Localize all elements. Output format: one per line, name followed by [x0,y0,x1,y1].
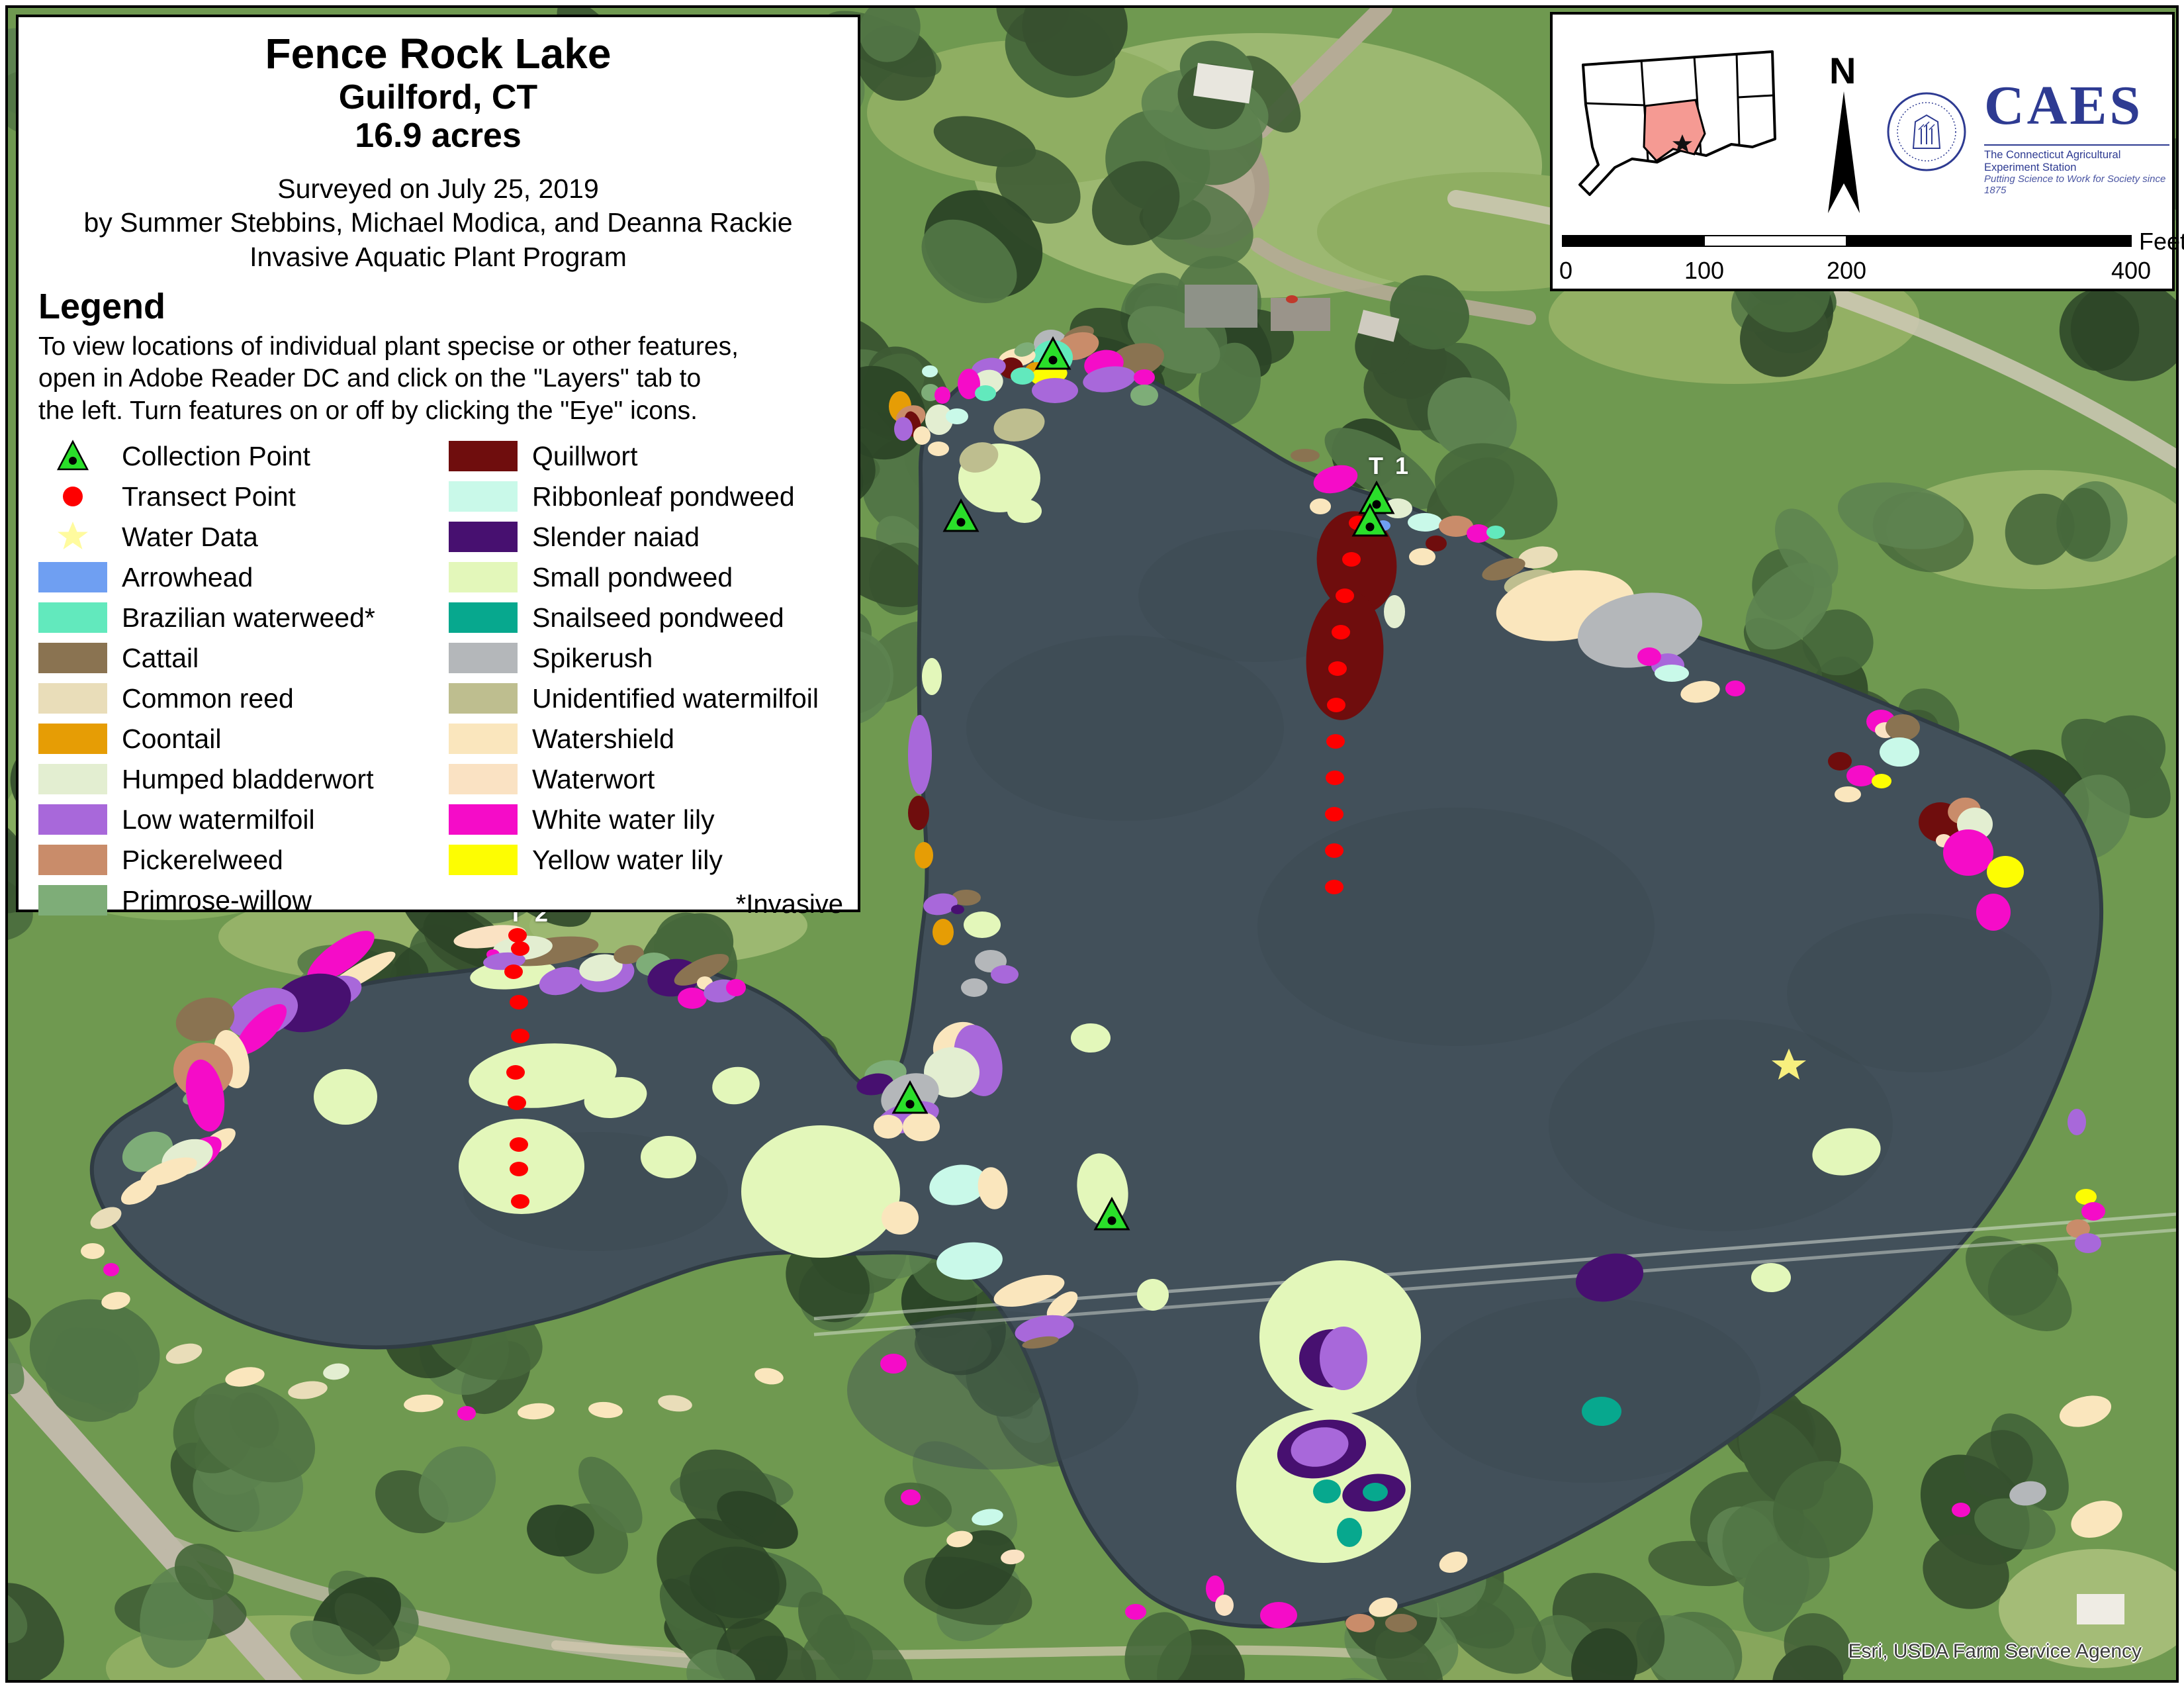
legend-item-ribbonleaf-pondweed: Ribbonleaf pondweed [449,477,846,517]
legend-label: Slender naiad [532,522,700,553]
legend-item-small-pondweed: Small pondweed [449,557,846,598]
legend-label: Ribbonleaf pondweed [532,481,795,512]
plant-bed-brazilian-waterweed [1486,526,1505,539]
plant-bed-watershield [882,1201,919,1235]
plant-bed-low-watermilfoil [1320,1327,1367,1390]
transect-point [1336,588,1354,603]
transect-point [504,964,523,979]
legend-swatch-arrowhead [38,562,107,592]
scale-tick-400: 400 [2111,257,2151,285]
legend-symbol-cell [38,480,107,513]
plant-bed-small-pondweed [1751,1263,1791,1292]
plant-bed-white-water-lily [726,979,746,996]
legend-item-snailseed-pondweed: Snailseed pondweed [449,598,846,638]
survey-info: Surveyed on July 25, 2019 by Summer Steb… [19,172,858,274]
plant-bed-small-pondweed [741,1125,900,1258]
legend-item-brazilian-waterweed: Brazilian waterweed* [38,598,449,638]
legend-swatch-yellow-water-lily [449,845,518,875]
survey-map-page: T 1T 2 Esri, USDA Farm Service Agency Fe… [0,0,2184,1688]
plant-bed-small-pondweed [1137,1279,1169,1311]
legend-item-transect-point: Transect Point [38,477,449,517]
legend-label: Collection Point [122,441,310,472]
legend-panel: Fence Rock Lake Guilford, CT 16.9 acres … [16,15,860,912]
survey-authors: by Summer Stebbins, Michael Modica, and … [19,206,858,240]
legend-label: Spikerush [532,643,653,674]
plant-bed-white-water-lily [1976,894,2011,931]
legend-item-spikerush: Spikerush [449,638,846,679]
legend-item-arrowhead: Arrowhead [38,557,449,598]
plant-bed-watershield [1409,548,1435,565]
north-arrow-icon [1817,87,1870,220]
legend-label: Snailseed pondweed [532,602,784,633]
scale-tick-200: 200 [1827,257,1866,285]
plant-bed-small-pondweed [314,1069,377,1125]
transect-point [508,1096,526,1110]
plant-bed-watershield [1835,786,1861,802]
plant-bed-cattail [1291,449,1320,462]
plant-bed-slender-naiad [951,905,964,914]
legend-item-coontail: Coontail [38,719,449,759]
legend-column-right: QuillwortRibbonleaf pondweedSlender naia… [449,436,846,921]
scale-bar: 0 100 200 400 Feet [1562,233,2168,286]
transect-point [510,995,528,1009]
plant-bed-white-water-lily [1134,369,1155,385]
plant-bed-white-water-lily [1125,1604,1146,1620]
legend-swatch-unidentified-watermilfoil [449,683,518,714]
plant-bed-watershield [928,442,949,456]
legend-item-common-reed: Common reed [38,679,449,719]
legend-label: Water Data [122,522,258,553]
transect-point [510,1137,528,1152]
plant-bed-ribbonleaf-pondweed [922,365,938,377]
legend-swatch-watershield [449,724,518,754]
plant-bed-low-watermilfoil [2068,1109,2086,1135]
transect-label: T 1 [1369,452,1411,479]
legend-swatch-snailseed-pondweed [449,602,518,633]
plant-bed-watershield [913,426,931,445]
building [1185,285,1257,328]
transect-point [1327,698,1345,712]
legend-label: Low watermilfoil [122,804,315,835]
legend-label: Common reed [122,683,294,714]
legend-label: Arrowhead [122,562,253,593]
transect-point [511,1029,529,1043]
plant-bed-coontail [933,919,954,945]
legend-item-low-watermilfoil: Low watermilfoil [38,800,449,840]
plant-bed-white-water-lily [934,387,950,404]
legend-label: Quillwort [532,441,637,472]
transect-point [1332,625,1350,639]
plant-bed-white-water-lily [1637,647,1661,666]
plant-bed-watershield [81,1243,105,1259]
plant-bed-watershield [1310,498,1331,514]
plant-bed-yellow-water-lily [1987,856,2024,888]
plant-bed-white-water-lily [1943,829,1993,876]
survey-date: Surveyed on July 25, 2019 [19,172,858,206]
legend-label: White water lily [532,804,715,835]
plant-bed-low-watermilfoil [908,715,932,794]
legend-instructions: To view locations of individual plant sp… [38,331,843,427]
plant-bed-white-water-lily [103,1263,119,1276]
legend-item-yellow-water-lily: Yellow water lily [449,840,846,880]
plant-bed-low-watermilfoil [2075,1233,2101,1253]
collection-point-icon [56,440,89,473]
legend-swatch-pickerelweed [38,845,107,875]
water-data-star-icon [56,520,89,553]
plant-bed-brazilian-waterweed [975,385,996,401]
legend-item-collection-point: Collection Point [38,436,449,477]
legend-swatch-cattail [38,643,107,673]
plant-bed-small-pondweed [964,912,1001,938]
plant-bed-white-water-lily [1260,1602,1297,1628]
plant-bed-ribbonleaf-pondweed [946,408,968,424]
legend-swatch-low-watermilfoil [38,804,107,835]
legend-swatch-small-pondweed [449,562,518,592]
legend-label: Pickerelweed [122,845,283,876]
legend-symbol-cell [38,440,107,473]
plant-bed-low-watermilfoil [1032,378,1078,403]
legend-label: Watershield [532,724,674,755]
plant-bed-quillwort [1828,752,1852,771]
caes-full-name: The Connecticut Agricultural Experiment … [1984,144,2169,174]
legend-item-pickerelweed: Pickerelweed [38,840,449,880]
map-subtitle: Guilford, CT [19,78,858,117]
legend-swatch-primrose-willow [38,885,107,915]
legend-item-primrose-willow: Primrose-willow [38,880,449,921]
transect-point [1325,843,1343,858]
plant-bed-white-water-lily [457,1406,476,1421]
transect-point [511,941,529,956]
legend-label: Transect Point [122,481,296,512]
building [2077,1594,2124,1624]
legend-label: Small pondweed [532,562,733,593]
legend-swatch-spikerush [449,643,518,673]
legend-swatch-white-water-lily [449,804,518,835]
legend-swatch-brazilian-waterweed [38,602,107,633]
plant-bed-low-watermilfoil [894,417,913,441]
legend-symbol-cell [38,520,107,553]
plant-bed-waterwort [1215,1595,1234,1616]
plant-bed-coontail [915,842,933,868]
legend-label: Yellow water lily [532,845,723,876]
transect-point [1328,661,1347,676]
building [1271,298,1330,331]
legend-label: Primrose-willow [122,885,312,916]
transect-point-icon [56,480,89,513]
plant-bed-brazilian-waterweed [1011,367,1034,385]
legend-label: Humped bladderwort [122,764,374,795]
plant-bed-white-water-lily [1725,680,1745,696]
inset-panel: N CAES The Connecticut Agricultural Expe… [1550,12,2175,291]
legend-item-waterwort: Waterwort [449,759,846,800]
legend-label: Coontail [122,724,221,755]
legend-item-humped-bladderwort: Humped bladderwort [38,759,449,800]
plant-bed-watershield [874,1115,903,1139]
plant-bed-white-water-lily [880,1354,907,1374]
legend-item-water-data: Water Data [38,517,449,557]
scale-tick-100: 100 [1684,257,1724,285]
plant-bed-cattail [1886,714,1920,741]
plant-bed-cattail [1385,1614,1417,1632]
transect-point [1342,552,1361,567]
survey-program: Invasive Aquatic Plant Program [19,240,858,274]
basemap-attribution: Esri, USDA Farm Service Agency [1848,1640,2142,1663]
plant-bed-humped-bladderwort [1384,595,1405,628]
plant-bed-snailseed-pondweed [1363,1483,1388,1501]
plant-bed-small-pondweed [641,1136,696,1178]
title-block: Fence Rock Lake Guilford, CT 16.9 acres [19,30,858,155]
plant-bed-quillwort [908,796,929,830]
scale-tick-0: 0 [1559,257,1572,285]
plant-bed-spikerush [961,978,987,997]
invasive-note: *Invasive [449,890,843,919]
legend-item-white-water-lily: White water lily [449,800,846,840]
caes-seal-icon [1884,89,1970,175]
legend-swatch-ribbonleaf-pondweed [449,481,518,512]
plant-bed-snailseed-pondweed [1582,1397,1621,1426]
legend-columns: Collection PointTransect PointWater Data… [38,436,851,921]
legend-heading: Legend [38,286,858,327]
legend-label: Waterwort [532,764,655,795]
plant-bed-primrose-willow [1130,385,1158,406]
map-title: Fence Rock Lake [19,30,858,78]
legend-label: Brazilian waterweed* [122,602,375,633]
caes-tagline: Putting Science to Work for Society sinc… [1984,173,2169,196]
north-label: N [1829,49,1856,92]
transect-point [511,1194,529,1209]
legend-column-left: Collection PointTransect PointWater Data… [38,436,449,921]
plant-bed-small-pondweed [1071,1023,1111,1053]
ct-inset-map [1562,34,1820,233]
legend-item-unidentified-watermilfoil: Unidentified watermilfoil [449,679,846,719]
plant-bed-yellow-water-lily [1872,774,1891,788]
legend-label: Cattail [122,643,199,674]
transect-point [510,1162,528,1176]
legend-item-quillwort: Quillwort [449,436,846,477]
legend-swatch-common-reed [38,683,107,714]
plant-bed-white-water-lily [1846,765,1876,786]
legend-swatch-coontail [38,724,107,754]
transect-point [508,928,527,943]
transect-point [1325,880,1343,894]
plant-bed-white-water-lily [901,1489,921,1505]
plant-bed-small-pondweed [1007,499,1042,523]
legend-item-watershield: Watershield [449,719,846,759]
plant-bed-watershield [903,1112,940,1141]
plant-bed-ribbonleaf-pondweed [1408,513,1442,532]
transect-point [1325,807,1343,821]
plant-bed-pickerelweed [1345,1614,1375,1632]
transect-point [506,1065,525,1080]
scale-unit: Feet [2139,228,2184,256]
plant-bed-white-water-lily [1952,1503,1970,1517]
caes-wordmark: CAES [1984,78,2143,134]
legend-item-slender-naiad: Slender naiad [449,517,846,557]
legend-swatch-waterwort [449,764,518,794]
plant-bed-quillwort [1426,536,1447,551]
legend-label: Unidentified watermilfoil [532,683,819,714]
transect-point [1326,734,1345,749]
plant-bed-white-water-lily [678,988,707,1009]
legend-swatch-slender-naiad [449,522,518,552]
map-acreage: 16.9 acres [19,117,858,155]
legend-swatch-humped-bladderwort [38,764,107,794]
legend-swatch-quillwort [449,441,518,471]
plant-bed-low-watermilfoil [991,965,1019,984]
transect-point [1326,771,1344,785]
legend-item-cattail: Cattail [38,638,449,679]
plant-bed-small-pondweed [922,658,942,695]
plant-bed-ribbonleaf-pondweed [1655,665,1689,682]
plant-bed-snailseed-pondweed [1337,1518,1362,1547]
plant-bed-snailseed-pondweed [1313,1479,1341,1503]
plant-bed-ribbonleaf-pondweed [1880,737,1919,767]
plant-bed-white-water-lily [2081,1202,2105,1221]
